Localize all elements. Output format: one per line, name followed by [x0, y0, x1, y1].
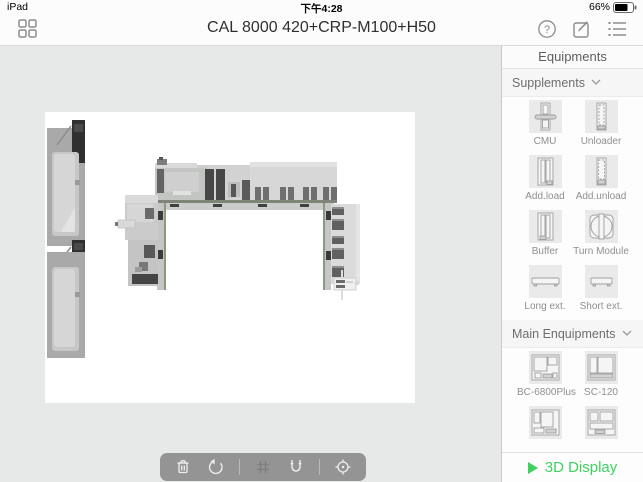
analyzer-thumbnail: [585, 406, 618, 439]
equipments-panel-title: Equipments: [502, 45, 643, 69]
add-unload-thumbnail: [585, 155, 618, 188]
locate-icon: [333, 457, 353, 477]
magnet-button[interactable]: [286, 457, 306, 477]
play-icon: [528, 462, 538, 474]
equipment-item-short-ext[interactable]: Short ext.: [573, 265, 629, 320]
short-ext-thumbnail: [585, 265, 618, 298]
buffer-thumbnail: [529, 210, 562, 243]
svg-text:?: ?: [544, 24, 550, 36]
toolbar-divider: [239, 459, 240, 475]
supplements-grid: CMU Unloader: [502, 97, 643, 320]
nav-bar: CAL 8000 420+CRP-M100+H50 ?: [0, 15, 643, 45]
equipment-item-label: SC-120: [573, 387, 629, 398]
equipment-item-long-ext[interactable]: Long ext.: [517, 265, 573, 320]
chevron-down-icon: [622, 330, 632, 337]
delete-button[interactable]: [173, 457, 193, 477]
equipment-item-label: Long ext.: [517, 301, 573, 312]
compose-icon: [571, 18, 593, 40]
section-main-equipments[interactable]: Main Enquipments: [502, 320, 643, 348]
equipment-item-label: Short ext.: [573, 301, 629, 312]
section-supplements-label: Supplements: [512, 76, 585, 90]
status-bar: iPad 下午4:28 66%: [0, 0, 643, 15]
placed-track-left-arm: [115, 195, 166, 290]
rotate-ccw-icon: [206, 457, 226, 477]
status-time: 下午4:28: [0, 1, 643, 16]
magnet-icon: [286, 457, 306, 477]
placed-analyzer-left-1: [47, 120, 85, 246]
layout-drawing[interactable]: [45, 112, 415, 403]
equipment-item-label: BC-6800Plus: [517, 387, 573, 398]
cmu-thumbnail: [529, 100, 562, 133]
top-chrome: iPad 下午4:28 66% CAL: [0, 0, 643, 46]
equipment-item-label: Add.load: [517, 191, 573, 202]
equipment-item-buffer[interactable]: Buffer: [517, 210, 573, 265]
equipment-item-label: Add.unload: [573, 191, 629, 202]
bc6800plus-thumbnail: [529, 351, 562, 384]
equipment-item-label: CMU: [517, 136, 573, 147]
equipment-item-add-unload[interactable]: Add.unload: [573, 155, 629, 210]
3d-display-button[interactable]: 3D Display: [502, 452, 643, 482]
equipment-item-label: Buffer: [517, 246, 573, 257]
equipment-item-sc120[interactable]: SC-120: [573, 351, 629, 406]
list-icon: [606, 18, 629, 40]
design-area: [0, 45, 501, 482]
turn-module-thumbnail: [585, 210, 618, 243]
toolbar-divider: [319, 459, 320, 475]
section-main-equipments-label: Main Enquipments: [512, 327, 616, 341]
unloader-thumbnail: [585, 100, 618, 133]
3d-display-label: 3D Display: [545, 459, 618, 476]
chevron-down-icon: [591, 79, 601, 86]
grid-icon: [253, 457, 273, 477]
placed-track-top: [155, 157, 337, 210]
equipments-panel: Equipments Supplements CMU: [501, 45, 643, 482]
placed-track-right-arm: [323, 203, 360, 300]
edit-button[interactable]: [571, 18, 593, 40]
analyzer-thumbnail: [529, 406, 562, 439]
equipment-item-label: Unloader: [573, 136, 629, 147]
equipment-item-cmu[interactable]: CMU: [517, 100, 573, 155]
help-button[interactable]: ?: [536, 18, 558, 40]
add-load-thumbnail: [529, 155, 562, 188]
equipment-item-label: Turn Module: [573, 246, 629, 257]
canvas-toolbar: [160, 453, 366, 481]
equipment-item-turn-module[interactable]: Turn Module: [573, 210, 629, 265]
snap-grid-button[interactable]: [253, 457, 273, 477]
help-icon: ?: [536, 18, 558, 40]
main-equipments-grid: BC-6800Plus SC-120: [502, 348, 643, 461]
list-button[interactable]: [606, 18, 629, 40]
trash-icon: [173, 457, 193, 477]
rotate-button[interactable]: [206, 457, 226, 477]
locate-button[interactable]: [333, 457, 353, 477]
equipment-item-unloader[interactable]: Unloader: [573, 100, 629, 155]
placed-analyzer-left-2: [47, 240, 85, 358]
equipment-item-add-load[interactable]: Add.load: [517, 155, 573, 210]
sc120-thumbnail: [585, 351, 618, 384]
section-supplements[interactable]: Supplements: [502, 69, 643, 97]
long-ext-thumbnail: [529, 265, 562, 298]
battery-icon: [613, 2, 637, 13]
battery-percent: 66%: [589, 1, 610, 13]
layout-canvas[interactable]: [45, 112, 415, 403]
equipment-item-bc6800plus[interactable]: BC-6800Plus: [517, 351, 573, 406]
